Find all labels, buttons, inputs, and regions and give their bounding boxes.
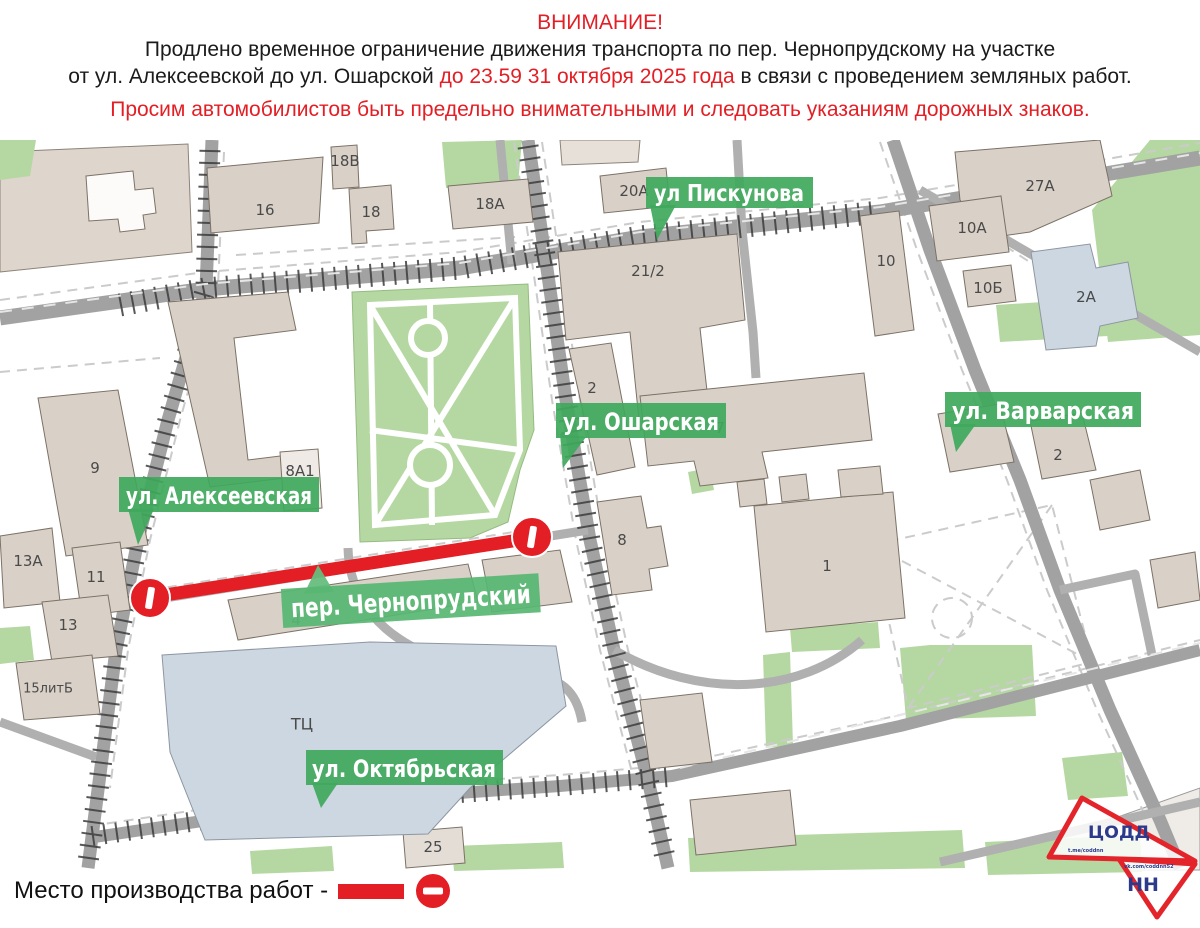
closure-line-sample bbox=[338, 884, 404, 899]
park-circle-south bbox=[410, 445, 450, 485]
building-number: 18В bbox=[330, 152, 359, 170]
building-number: 18А bbox=[475, 195, 505, 213]
codd-nn-logo: ЦОДД t.me/coddnn vk.com/coddnn52 НН bbox=[1046, 788, 1200, 928]
park-chernoprudsky bbox=[352, 284, 534, 542]
building-number: 11 bbox=[86, 568, 105, 586]
advisory-line-2-end: в связи с проведением земляных работ. bbox=[735, 65, 1132, 88]
building-number: 16 bbox=[255, 201, 274, 219]
building-number: 10 bbox=[876, 252, 895, 270]
logo-social-bottom: vk.com/coddnn52 bbox=[1124, 864, 1174, 870]
building-number: 9 bbox=[90, 459, 100, 477]
building-number: 21/2 bbox=[631, 262, 665, 280]
building-number: 10Б bbox=[973, 279, 1002, 297]
logo-social-top: t.me/coddnn bbox=[1068, 848, 1104, 854]
advisory-line-3: Просим автомобилистов быть предельно вни… bbox=[0, 96, 1200, 123]
legend-label: Место производства работ - bbox=[14, 877, 328, 905]
building-number: 15литБ bbox=[23, 682, 73, 697]
building-number: 2 bbox=[587, 379, 597, 397]
building-number: 8 bbox=[617, 531, 627, 549]
street-label-text: ул. Ошарская bbox=[563, 408, 719, 436]
traffic-advisory-page: { "header": { "attention": "ВНИМАНИЕ!", … bbox=[0, 0, 1200, 928]
park-circle-north bbox=[411, 321, 445, 355]
advisory-deadline: до 23.59 31 октября 2025 года bbox=[440, 65, 735, 88]
building-number: 2 bbox=[1053, 446, 1063, 464]
logo-text-bottom: НН bbox=[1127, 874, 1159, 896]
advisory-line-2: от ул. Алексеевской до ул. Ошарской до 2… bbox=[0, 63, 1200, 90]
building-number: 18 bbox=[361, 203, 380, 221]
building-number: 2А bbox=[1076, 288, 1097, 306]
building-number: 25 bbox=[423, 838, 442, 856]
advisory-header: ВНИМАНИЕ! Продлено временное ограничение… bbox=[0, 0, 1200, 140]
attention-title: ВНИМАНИЕ! bbox=[0, 0, 1200, 36]
no-entry-icon bbox=[512, 517, 552, 557]
building-number: 27А bbox=[1025, 177, 1055, 195]
advisory-line-1: Продлено временное ограничение движения … bbox=[0, 36, 1200, 63]
building-number: 20А bbox=[619, 182, 649, 200]
building-number: 13А bbox=[13, 552, 43, 570]
city-map: 16 18 18В 18А 20А 21/2 27А 10А 10 10Б 2А… bbox=[0, 140, 1200, 875]
street-label-text: ул. Алексеевская bbox=[126, 482, 312, 510]
logo-text-top: ЦОДД bbox=[1088, 823, 1150, 843]
building-number: 13 bbox=[58, 616, 77, 634]
street-label-text: ул Пискунова bbox=[654, 181, 804, 207]
building-number: 1 bbox=[822, 557, 832, 575]
street-label-text: ул. Варварская bbox=[952, 397, 1134, 425]
street-label-text: ул. Октябрьская bbox=[312, 755, 496, 783]
no-entry-icon bbox=[130, 578, 170, 618]
legend: Место производства работ - bbox=[14, 872, 452, 910]
no-entry-icon bbox=[414, 872, 452, 910]
building-number: ТЦ bbox=[290, 715, 313, 734]
advisory-line-2-start: от ул. Алексеевской до ул. Ошарской bbox=[68, 65, 439, 88]
building-number: 10А bbox=[957, 219, 987, 237]
